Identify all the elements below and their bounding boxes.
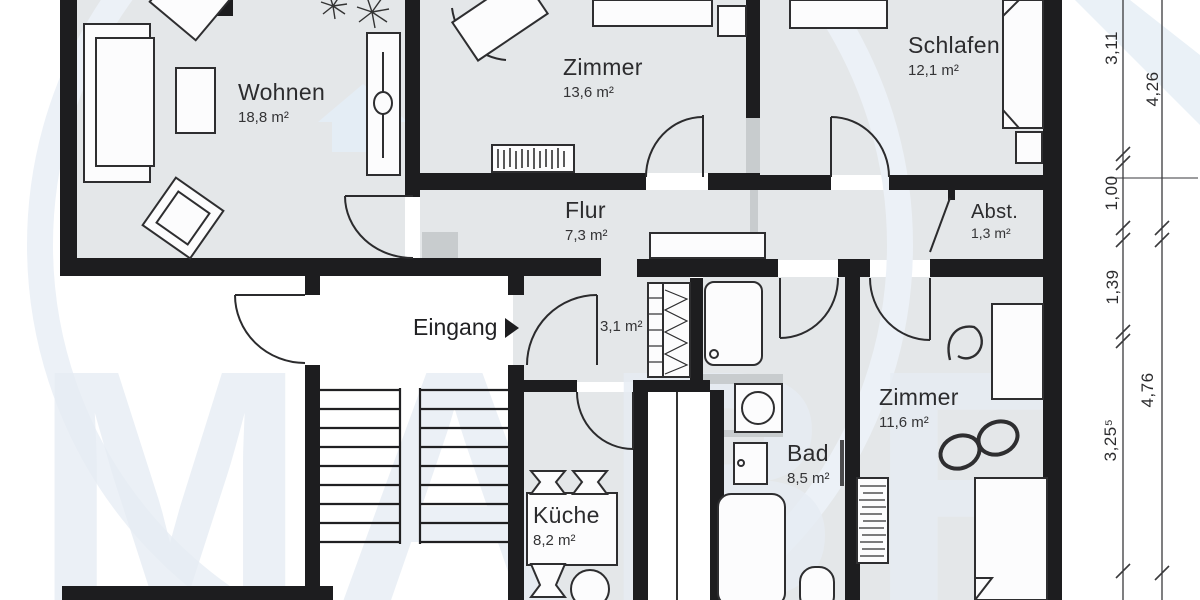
room-floor-passage	[601, 256, 637, 278]
dresser	[790, 0, 887, 28]
entrance-text: Eingang	[413, 314, 497, 341]
wall-stair-left-top	[305, 275, 320, 295]
dimension-4-26: 4,26	[1143, 71, 1163, 106]
dimension-3-25: 3,25⁵	[1101, 419, 1121, 462]
desk	[992, 304, 1043, 399]
flur-niche	[422, 232, 458, 258]
bed-zimmer-oben	[593, 0, 712, 26]
dimension-4-76: 4,76	[1138, 372, 1158, 407]
dimension-3-11: 3,11	[1102, 31, 1122, 65]
wall-zimmer-flur-left	[420, 173, 646, 190]
floorplan: MABF	[0, 0, 1200, 600]
wall-south-band-mid	[637, 259, 778, 277]
bad-radiator	[840, 440, 844, 486]
bad-shelf	[703, 374, 783, 384]
bathtub	[718, 494, 785, 600]
coffee-table	[176, 68, 215, 133]
washing-machine	[735, 384, 782, 432]
wall-stair-left	[305, 365, 320, 600]
wall-schlafen-corridor-right	[889, 175, 1062, 190]
wall-schlafen-corridor-left	[760, 175, 831, 190]
wall-outer-left	[60, 0, 77, 276]
bookshelf	[857, 478, 888, 563]
wall-zimmer-flur-right	[708, 173, 760, 190]
sideboard	[650, 233, 765, 258]
floorplan-drawing: MABF	[0, 0, 1200, 600]
wall-bottom-landing	[62, 586, 333, 600]
nightstand-schlafen	[1016, 132, 1042, 163]
corridor-pillar	[750, 187, 758, 237]
chair-round	[571, 570, 609, 600]
wall-entry-bottom	[508, 365, 524, 600]
wall-kueche-top-left	[513, 380, 577, 392]
bed-zimmer-unten	[975, 478, 1047, 600]
bed-schlafen	[1003, 0, 1043, 128]
wall-kueche-right	[633, 392, 648, 600]
wall-south-band-west	[60, 258, 601, 276]
watermark-swoosh	[1075, 0, 1200, 125]
sink	[734, 443, 767, 484]
radiator	[492, 145, 574, 172]
shaft	[648, 392, 710, 600]
wall-zimmer-schlafen	[746, 0, 760, 118]
entrance-label: Eingang	[413, 314, 519, 341]
dimension-1-00: 1,00	[1102, 175, 1122, 210]
wall-diele-bad	[690, 278, 703, 392]
wall-entry-top	[508, 275, 524, 295]
wall-wohnen-zimmer	[405, 0, 420, 197]
kitchen-table	[527, 493, 617, 565]
dimension-1-39: 1,39	[1103, 269, 1123, 304]
wardrobe	[648, 283, 690, 377]
dimension-ticks	[1116, 147, 1169, 580]
toilet	[800, 567, 834, 600]
wall-south-band-east	[930, 259, 1043, 277]
entrance-arrow-icon	[505, 318, 519, 338]
nightstand	[718, 6, 746, 36]
